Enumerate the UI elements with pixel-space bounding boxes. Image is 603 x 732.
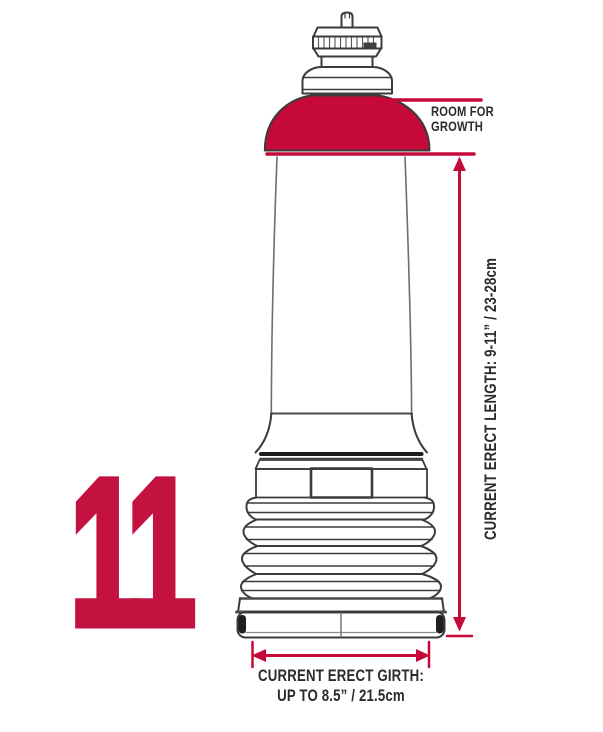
arrow-down-icon: [453, 617, 466, 632]
valve-seal-detail: [364, 43, 377, 48]
girth-label-line2: UP TO 8.5” / 21.5cm: [224, 686, 458, 706]
bellows: [241, 498, 441, 599]
base-cushion: [237, 599, 446, 638]
arrow-up-icon: [453, 157, 466, 172]
valve-pin: [342, 13, 353, 28]
valve-housing: [303, 57, 393, 94]
room-for-growth-label: ROOM FOR GROWTH: [431, 104, 494, 133]
length-label: CURRENT ERECT LENGTH: 9-11” / 23-28cm: [481, 258, 501, 540]
collar-latch-window: [311, 469, 372, 498]
length-dimension: [267, 100, 481, 636]
girth-label-line1: CURRENT ERECT GIRTH:: [224, 666, 458, 686]
growth-zone: [265, 96, 430, 151]
base-cap-left: [239, 615, 247, 634]
room-for-growth-line2: GROWTH: [431, 119, 494, 134]
base-cap-right: [436, 615, 444, 634]
room-for-growth-line1: ROOM FOR: [431, 104, 494, 119]
valve-cap: [313, 28, 382, 57]
support-collar: [256, 454, 428, 498]
figure-number: 11: [70, 449, 190, 657]
girth-dimension: [252, 642, 431, 667]
diagram-canvas: 11 ROOM FOR GROWTH CURRENT ERECT LENGTH:…: [0, 0, 603, 732]
cylinder: [256, 157, 428, 453]
girth-label: CURRENT ERECT GIRTH: UP TO 8.5” / 21.5cm: [224, 666, 458, 705]
